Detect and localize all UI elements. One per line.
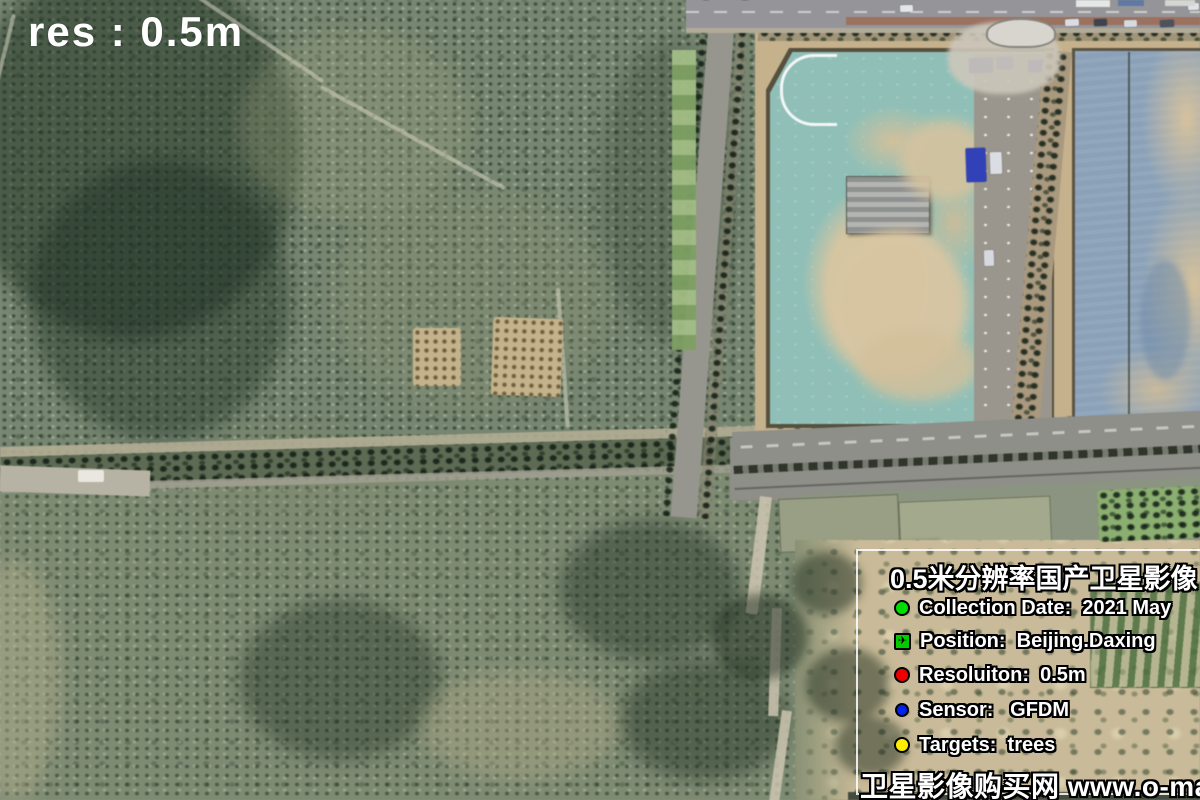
legend-row-sensor: Sensor: GFDM: [894, 697, 1069, 723]
building-roof: [1165, 0, 1195, 6]
resolution-overlay-label: res : 0.5m: [28, 8, 244, 56]
gate-structure: [78, 470, 104, 482]
collection-date-dot-icon: [894, 600, 910, 616]
inner-wall-line: [1128, 52, 1130, 426]
light-canopy-patch: [330, 190, 610, 410]
legend-label: Sensor: GFDM: [919, 697, 1069, 723]
tree-clump: [240, 600, 440, 760]
watermark-site-name: 卫星影像购买网 www.o-map.cn: [860, 765, 1200, 800]
truck: [990, 152, 1003, 174]
legend-label: Position: Beijing.Daxing: [920, 628, 1156, 654]
legend-label: Resoluiton: 0.5m: [919, 662, 1086, 688]
info-box-title: 0.5米分辨率国产卫星影像: [890, 557, 1198, 596]
orchard-block: [413, 328, 461, 386]
lane-markings: [686, 11, 1200, 13]
bare-soil-patch: [420, 670, 620, 780]
resolution-dot-icon: [894, 667, 910, 683]
screenshot-root: res : 0.5m 0.5米分辨率国产卫星影像 Collection Date…: [0, 0, 1200, 800]
legend-row-targets: Targets: trees: [894, 732, 1055, 758]
tarp-patch: [1140, 260, 1190, 380]
car: [1160, 20, 1174, 27]
car: [1124, 20, 1137, 27]
legend-row-resolution: Resoluiton: 0.5m: [894, 662, 1086, 688]
legend-row-position: Position: Beijing.Daxing: [894, 628, 1156, 654]
green-tree-rows: [1097, 486, 1200, 543]
gate-canopy: [986, 18, 1056, 48]
car: [1094, 19, 1107, 26]
building-roof: [1118, 0, 1144, 6]
building-roof: [1076, 0, 1110, 7]
legend-label: Targets: trees: [919, 732, 1055, 758]
white-curb-arc: [780, 54, 837, 126]
greenbelt-zigzag: [672, 50, 696, 350]
construction-site-b: [1075, 51, 1200, 427]
legend-label: Collection Date: 2021 May: [919, 595, 1171, 621]
truck: [965, 148, 986, 183]
road-stub-west: [0, 465, 150, 496]
legend-row-collection-date: Collection Date: 2021 May: [894, 595, 1171, 621]
info-box: 0.5米分辨率国产卫星影像 Collection Date: 2021 May …: [856, 549, 1200, 795]
sensor-dot-icon: [895, 703, 909, 717]
truck: [984, 250, 995, 266]
orchard-block: [491, 317, 564, 397]
tree-clump: [792, 552, 862, 614]
sand-mound: [858, 330, 978, 400]
lane-markings: [741, 425, 1200, 449]
light-canopy-patch: [240, 30, 470, 220]
car: [1065, 19, 1079, 26]
position-plane-icon: [894, 633, 911, 650]
car: [900, 5, 913, 12]
tree-clump: [30, 160, 290, 440]
sidewalk: [686, 28, 1200, 33]
tree-clump: [712, 594, 808, 680]
targets-dot-icon: [894, 737, 910, 753]
